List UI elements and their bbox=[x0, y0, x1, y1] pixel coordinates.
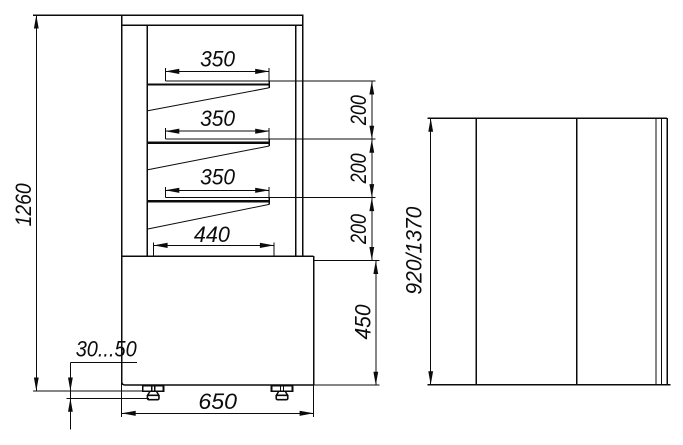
svg-text:1260: 1260 bbox=[11, 183, 36, 227]
svg-text:350: 350 bbox=[200, 165, 236, 190]
svg-text:440: 440 bbox=[194, 222, 231, 247]
svg-text:350: 350 bbox=[200, 46, 236, 71]
svg-text:650: 650 bbox=[198, 389, 237, 414]
svg-text:350: 350 bbox=[200, 106, 236, 131]
svg-text:30...50: 30...50 bbox=[76, 337, 138, 362]
svg-text:200: 200 bbox=[346, 94, 371, 125]
svg-text:200: 200 bbox=[346, 153, 371, 184]
svg-text:200: 200 bbox=[346, 213, 371, 244]
svg-text:920/1370: 920/1370 bbox=[402, 206, 427, 295]
svg-text:450: 450 bbox=[351, 304, 376, 340]
